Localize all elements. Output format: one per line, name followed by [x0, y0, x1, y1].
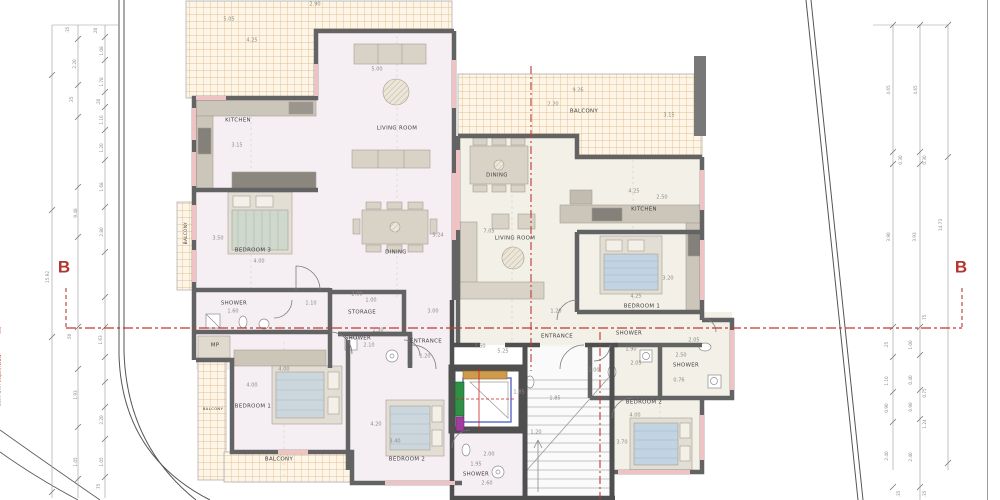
balcony-left-lower [198, 355, 226, 480]
bed [272, 366, 342, 424]
balcony-bottom [224, 452, 352, 482]
floor-plan-page: KITCHENLIVING ROOMDININGBEDROOM 3SHOWERS… [0, 0, 1000, 500]
watermark-prefix: built with [0, 382, 3, 406]
kitchen-island [232, 172, 316, 189]
balcony-left-strip [177, 202, 194, 290]
watermark: built with https://www.********.eu [0, 327, 3, 406]
stove [592, 208, 622, 221]
watermark-url: https://www.********.eu [0, 327, 3, 382]
round-table [502, 247, 524, 269]
floor-plan-canvas [0, 0, 1000, 500]
stove [198, 128, 211, 154]
sofa [352, 150, 430, 168]
titleblock-strip [987, 0, 1000, 500]
elevator-detail [455, 368, 515, 431]
lift-buffer [456, 417, 464, 431]
stairwell-floor [527, 347, 612, 498]
wardrobe [234, 350, 326, 366]
bed [228, 192, 292, 254]
kitchen-counter [560, 205, 702, 223]
mp-closet [198, 336, 230, 358]
balcony-corner-post [694, 56, 706, 136]
bed [386, 400, 444, 456]
bed [600, 236, 662, 294]
lift-beam [463, 371, 507, 379]
bed [630, 418, 692, 470]
sofa [354, 44, 426, 64]
round-table [383, 79, 409, 105]
